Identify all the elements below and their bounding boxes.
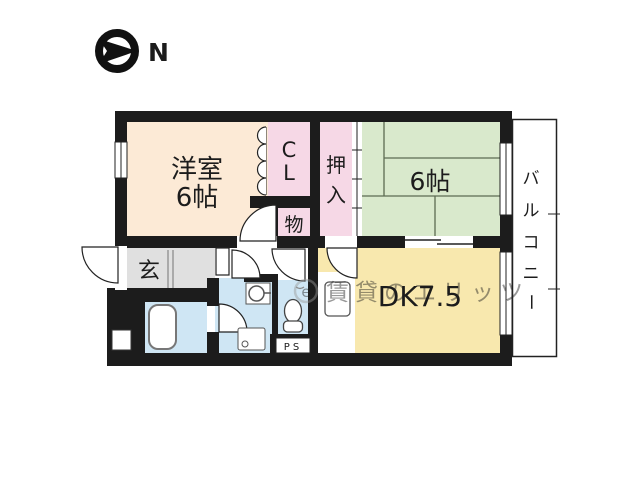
- washing-machine-pan-icon: [238, 328, 265, 350]
- entrance-label: 玄: [138, 259, 160, 284]
- wall-top: [115, 111, 512, 122]
- balcony-label-3: コ: [523, 233, 540, 253]
- meter-box: [112, 330, 131, 350]
- washroom-door-leaf: [216, 248, 229, 275]
- washroom-door-arc: [232, 250, 260, 278]
- tatami-dk-sliding-door-icon: [405, 236, 473, 248]
- floor-plan: N: [0, 0, 640, 480]
- window-tatami-balcony: [500, 143, 512, 215]
- balcony-label-1: バ: [523, 169, 540, 189]
- north-label: N: [148, 38, 169, 67]
- entrance-door-arc: [82, 247, 118, 283]
- balcony-label-2: ル: [523, 201, 540, 221]
- watermark-logo-letter: e: [301, 283, 310, 301]
- storage-label: 物: [284, 214, 303, 236]
- floor-plan-page: N: [0, 0, 640, 480]
- compass-north-icon: N: [99, 33, 169, 69]
- closet-cl-label-2: L: [283, 161, 295, 185]
- western-room-label-1: 洋室: [171, 155, 223, 185]
- dk-label: DK7.5: [378, 280, 462, 313]
- pipe-space-label: PS: [284, 342, 302, 353]
- closet-cl-label-1: C: [282, 138, 297, 162]
- tatami-room-label: 6帖: [410, 167, 451, 196]
- oshiire-sliding-door-icon: [352, 122, 362, 236]
- bathtub-icon: [149, 305, 176, 349]
- western-room-label-2: 6帖: [176, 183, 219, 213]
- balcony-label-5: ー: [520, 294, 540, 311]
- balcony-label-4: ニ: [523, 264, 540, 284]
- wall-bottom: [113, 353, 512, 366]
- oshiire-label-2: 入: [326, 183, 346, 207]
- washbasin-icon: [246, 283, 271, 304]
- oshiire-label-1: 押: [326, 153, 346, 177]
- room-oshiire: [320, 122, 352, 236]
- window-western-left: [115, 142, 127, 178]
